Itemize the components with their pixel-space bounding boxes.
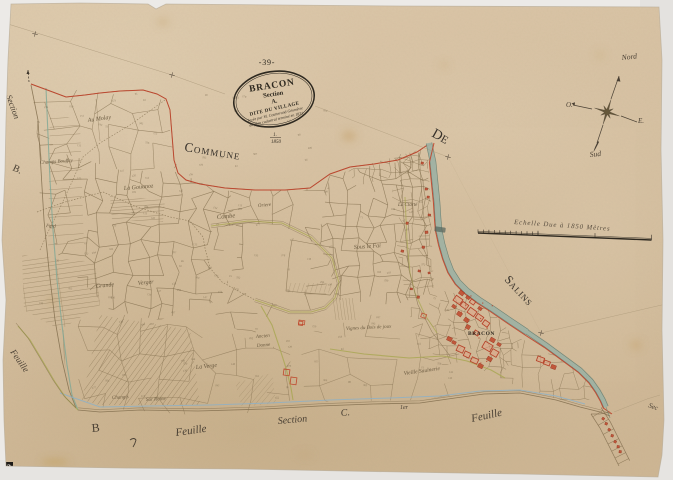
svg-text:383: 383 — [363, 384, 368, 387]
svg-text:147: 147 — [409, 211, 414, 214]
svg-text:296: 296 — [320, 281, 325, 284]
svg-text:La Clarté: La Clarté — [397, 203, 418, 208]
svg-text:356: 356 — [377, 271, 382, 274]
svg-text:323: 323 — [109, 248, 114, 251]
svg-text:144: 144 — [448, 377, 453, 380]
svg-text:Fard: Fard — [45, 224, 57, 230]
svg-text:1850: 1850 — [271, 140, 282, 145]
svg-text:121: 121 — [77, 177, 82, 180]
svg-text:273: 273 — [287, 365, 292, 368]
svg-text:195: 195 — [39, 302, 44, 305]
svg-text:144: 144 — [191, 358, 196, 361]
svg-text:351: 351 — [255, 375, 260, 378]
svg-text:185: 185 — [122, 374, 127, 377]
svg-text:B: B — [91, 420, 100, 435]
svg-text:141: 141 — [449, 371, 454, 374]
svg-text:Nord: Nord — [620, 51, 637, 62]
svg-text:Sud: Sud — [589, 149, 601, 159]
svg-text:343: 343 — [151, 217, 156, 220]
svg-text:BRACON: BRACON — [468, 331, 495, 337]
svg-text:297: 297 — [150, 323, 155, 326]
svg-text:140: 140 — [231, 363, 236, 366]
svg-text:1er: 1er — [400, 405, 409, 411]
svg-text:285: 285 — [238, 208, 243, 211]
svg-text:E.: E. — [637, 117, 644, 125]
svg-text:-39-: -39- — [259, 58, 276, 67]
svg-text:317: 317 — [157, 290, 162, 293]
svg-text:162: 162 — [391, 208, 396, 211]
svg-text:282: 282 — [249, 337, 254, 340]
svg-text:181: 181 — [132, 191, 137, 194]
svg-text:138: 138 — [307, 258, 312, 261]
svg-text:294: 294 — [44, 106, 49, 109]
svg-text:O.: O. — [566, 101, 573, 109]
svg-text:307: 307 — [253, 153, 258, 156]
svg-text:C.: C. — [340, 407, 350, 419]
svg-text:306: 306 — [323, 379, 328, 382]
svg-text:293: 293 — [177, 289, 182, 292]
svg-text:Changis: Changis — [112, 395, 129, 401]
